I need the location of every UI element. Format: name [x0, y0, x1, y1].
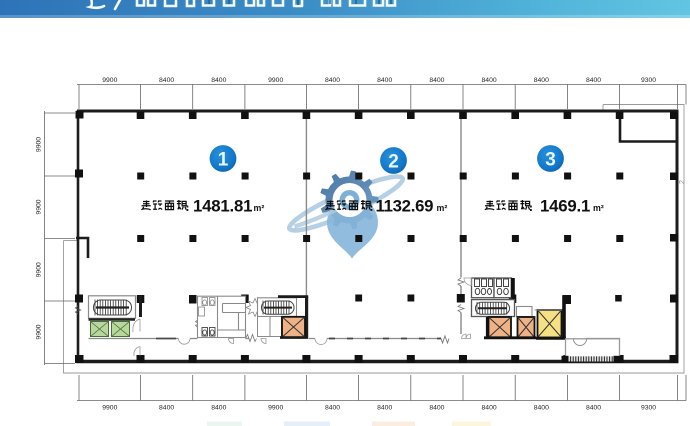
- svg-text:1481.81: 1481.81: [193, 197, 252, 216]
- svg-text:8400: 8400: [325, 405, 340, 412]
- svg-text:9900: 9900: [36, 324, 43, 339]
- svg-text:9300: 9300: [641, 77, 656, 84]
- svg-text:8400: 8400: [429, 405, 444, 412]
- svg-text:m²: m²: [593, 203, 604, 213]
- svg-text:9900: 9900: [102, 405, 117, 412]
- svg-text:8400: 8400: [482, 405, 497, 412]
- svg-text:8400: 8400: [482, 77, 497, 84]
- svg-text:8400: 8400: [377, 405, 392, 412]
- svg-text:9900: 9900: [102, 77, 117, 84]
- svg-text:8400: 8400: [586, 77, 601, 84]
- svg-text:9900: 9900: [268, 405, 283, 412]
- svg-text:8400: 8400: [534, 405, 549, 412]
- svg-text:8400: 8400: [534, 77, 549, 84]
- svg-text:8400: 8400: [325, 77, 340, 84]
- svg-text:8400: 8400: [377, 77, 392, 84]
- svg-text:9900: 9900: [36, 199, 43, 214]
- svg-text:2: 2: [679, 180, 686, 184]
- svg-text:3: 3: [545, 149, 556, 170]
- svg-text:8400: 8400: [211, 405, 226, 412]
- svg-text:8400: 8400: [159, 405, 174, 412]
- svg-text:m²: m²: [437, 203, 448, 213]
- svg-text:2: 2: [388, 151, 399, 172]
- svg-text:9900: 9900: [36, 137, 43, 152]
- svg-text:8400: 8400: [159, 77, 174, 84]
- svg-text:1: 1: [218, 149, 229, 170]
- svg-text:m²: m²: [254, 203, 265, 213]
- svg-text:9300: 9300: [641, 405, 656, 412]
- svg-text:9900: 9900: [268, 77, 283, 84]
- svg-text:8400: 8400: [429, 77, 444, 84]
- svg-text:8400: 8400: [211, 77, 226, 84]
- svg-text:9900: 9900: [36, 262, 43, 277]
- svg-text:8400: 8400: [586, 405, 601, 412]
- svg-text:1132.69: 1132.69: [376, 197, 434, 216]
- svg-text:1469.1: 1469.1: [540, 197, 590, 216]
